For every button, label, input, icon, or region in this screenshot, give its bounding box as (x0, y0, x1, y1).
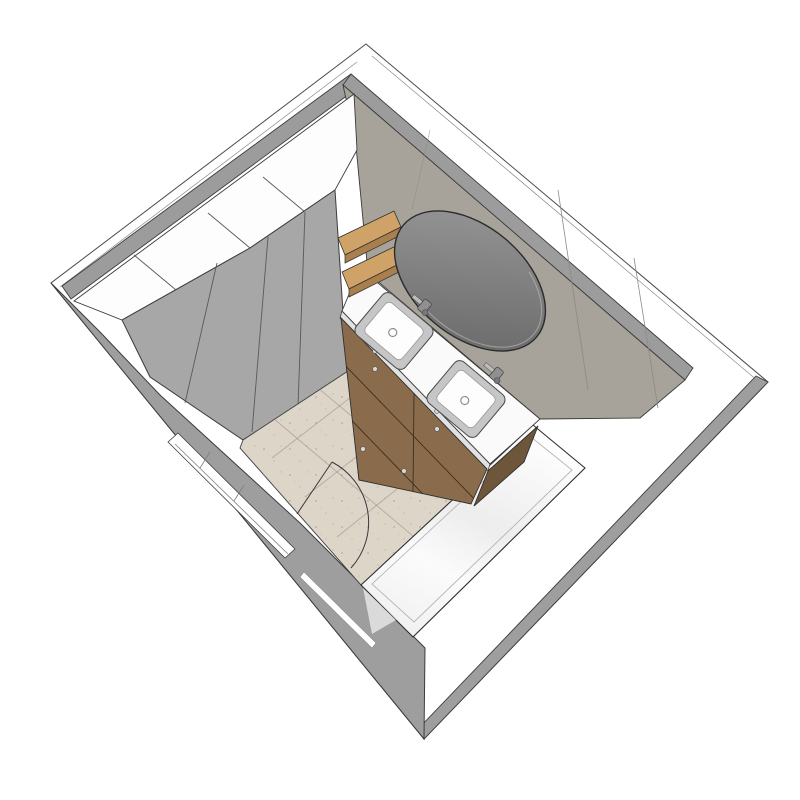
render-viewport (0, 0, 800, 800)
bathroom-3d-render (0, 0, 800, 800)
